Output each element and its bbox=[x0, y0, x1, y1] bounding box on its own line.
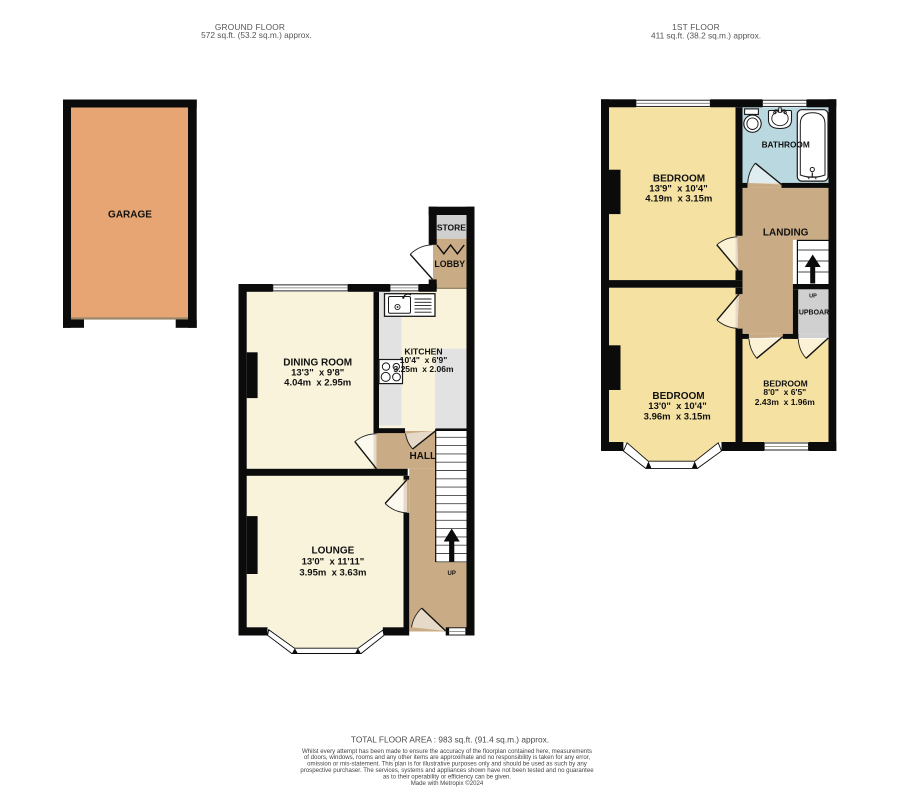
svg-text:UP: UP bbox=[809, 293, 817, 299]
svg-text:TOTAL FLOOR AREA : 983 sq.ft.: TOTAL FLOOR AREA : 983 sq.ft. (91.4 sq.m… bbox=[351, 735, 549, 745]
svg-text:CUPBOARD: CUPBOARD bbox=[794, 309, 834, 316]
svg-text:13'0" x 11'11": 13'0" x 11'11" bbox=[302, 556, 365, 567]
svg-text:LOBBY: LOBBY bbox=[434, 259, 465, 269]
svg-text:GARAGE: GARAGE bbox=[108, 210, 152, 221]
svg-text:LOUNGE: LOUNGE bbox=[312, 545, 355, 556]
svg-text:UP: UP bbox=[448, 571, 456, 577]
svg-text:4.19m x 3.15m: 4.19m x 3.15m bbox=[645, 194, 712, 205]
svg-text:13'0" x 10'4": 13'0" x 10'4" bbox=[648, 401, 706, 412]
svg-text:3.96m x 3.15m: 3.96m x 3.15m bbox=[644, 411, 711, 422]
svg-text:LANDING: LANDING bbox=[763, 227, 809, 238]
svg-text:3.95m x 3.63m: 3.95m x 3.63m bbox=[299, 567, 366, 578]
svg-text:BATHROOM: BATHROOM bbox=[762, 140, 810, 150]
svg-text:572 sq.ft. (53.2 sq.m.) approx: 572 sq.ft. (53.2 sq.m.) approx. bbox=[201, 30, 312, 40]
svg-text:2.43m x 1.96m: 2.43m x 1.96m bbox=[755, 397, 815, 407]
svg-text:3.25m x 2.06m: 3.25m x 2.06m bbox=[393, 364, 453, 374]
svg-text:Made with Metropix ©2024: Made with Metropix ©2024 bbox=[411, 780, 484, 787]
svg-text:8'0" x 6'5": 8'0" x 6'5" bbox=[763, 387, 806, 397]
svg-text:411 sq.ft. (38.2 sq.m.) approx: 411 sq.ft. (38.2 sq.m.) approx. bbox=[651, 30, 761, 40]
svg-text:4.04m x 2.95m: 4.04m x 2.95m bbox=[284, 377, 351, 388]
svg-text:HALL: HALL bbox=[409, 451, 436, 462]
svg-text:STORE: STORE bbox=[437, 223, 466, 233]
